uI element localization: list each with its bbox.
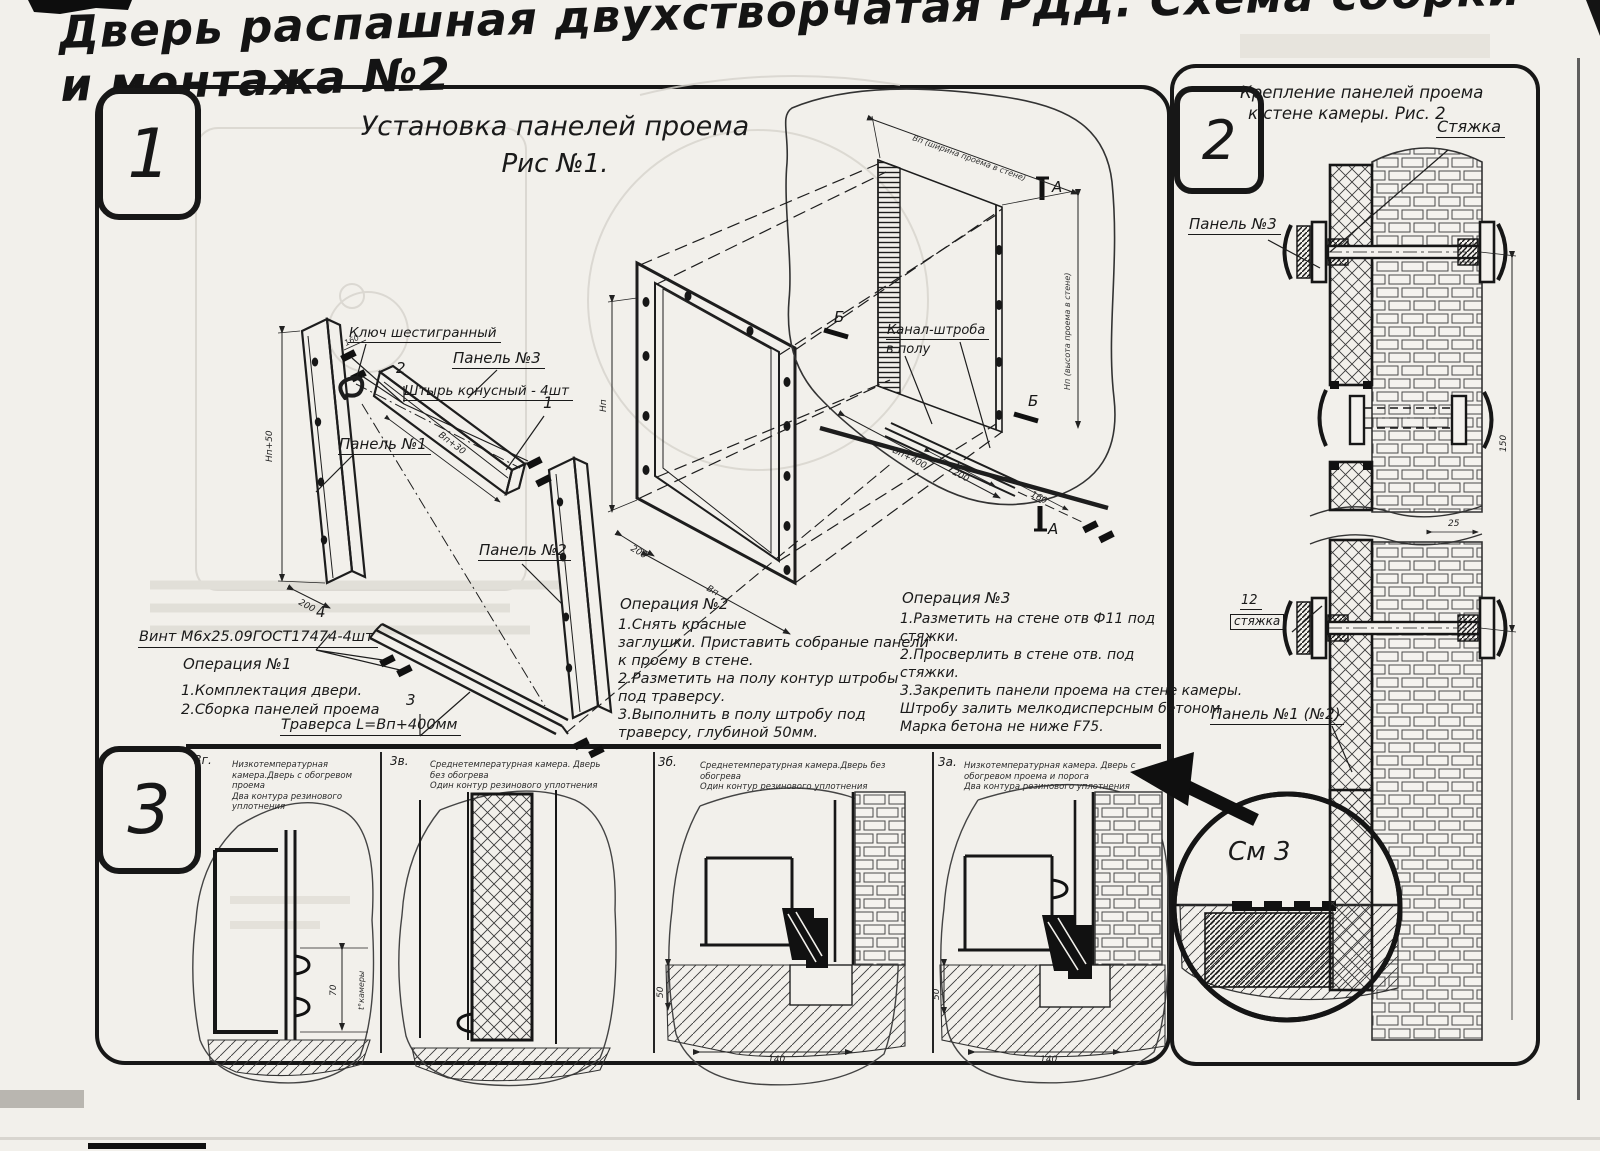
figure2-number: 2 — [1202, 109, 1236, 172]
caption-line: Низкотемпературная камера. Дверь с обогр… — [964, 761, 1164, 782]
fig2-heading-line2: к стене камеры. Рис. 2 — [1248, 105, 1446, 123]
operation2-line: заглушки. Приставить собраные панели — [618, 636, 929, 652]
operation3-line: стяжки. — [900, 666, 959, 681]
operation2-line: 2.Разметить на полу контур штробы — [618, 672, 898, 688]
pin-callout-number: 2 — [396, 360, 406, 377]
panel3-label: Панель №3 — [452, 350, 545, 369]
figure3-divider — [186, 744, 1161, 749]
operation2-line: 3.Выполнить в полу штробу под — [618, 708, 866, 724]
caption-line: Один контур резинового уплотнения — [700, 782, 890, 793]
operation2-line: траверсу, глубиной 50мм. — [618, 726, 818, 742]
figure1-number: 1 — [127, 115, 170, 194]
detail-3g-id: 3г. — [194, 754, 212, 767]
tie-rod-label: Стяжка — [1436, 118, 1505, 138]
figure1-frame — [95, 85, 1171, 1065]
part1-callout-number: 1 — [543, 394, 553, 412]
caption-line: Два контура резинового уплотнения — [964, 782, 1164, 793]
fig2-panel3-label: Панель №3 — [1188, 216, 1281, 235]
detail-3v-caption: Среднетемпературная камера. Дверь без об… — [430, 760, 615, 792]
figure3-badge: 3 — [97, 746, 201, 874]
operation3-line: 1.Разметить на стене отв Ф11 под — [900, 612, 1155, 627]
screw-label: Винт М6х25.09ГОСТ17474-4шт — [138, 630, 378, 648]
screw-callout-number: 4 — [316, 604, 326, 621]
detail-3a-id: 3а. — [938, 756, 957, 769]
figure3-number: 3 — [127, 771, 170, 850]
operation1-title: Операция №1 — [183, 656, 291, 673]
operation1-line1: 1.Комплектация двери. — [181, 684, 362, 700]
caption-line: Один контур резинового уплотнения — [430, 781, 615, 792]
figure3-divider-1 — [380, 752, 382, 1053]
panel1-2-label: Панель №1 (№2) — [1210, 706, 1344, 725]
fig1-heading-line1: Установка панелей проема — [330, 112, 780, 142]
caption-line: Низкотемпературная камера.Дверь с обогре… — [232, 760, 377, 792]
detail-3b-id: 3б. — [658, 756, 677, 769]
traverse-label: Траверса L=Вп+400мм — [280, 718, 461, 736]
figure2-badge: 2 — [1174, 86, 1264, 194]
caption-line: Среднетемпературная камера.Дверь без обо… — [700, 761, 890, 782]
figure1-badge: 1 — [97, 88, 201, 220]
operation3-title: Операция №3 — [902, 590, 1010, 607]
fig2-heading-line1: Крепление панелей проема — [1240, 84, 1483, 102]
detail-3v-id: 3в. — [390, 755, 409, 768]
operation2-title: Операция №2 — [620, 596, 728, 613]
drawing-sheet: Дверь распашная двухстворчатая РДД. Схем… — [0, 0, 1600, 1151]
operation2-line: 1.Снять красные — [618, 618, 746, 634]
operation3-line: 3.Закрепить панели проема на стене камер… — [900, 684, 1242, 699]
floor-channel-label-line2: в полу — [886, 343, 930, 357]
operation2-line: под траверсу. — [618, 690, 725, 706]
panel2-label: Панель №2 — [478, 542, 571, 561]
figure3-divider-2 — [653, 752, 655, 1053]
operation3-line: Штробу залить мелкодисперсным бетоном — [900, 702, 1220, 717]
operation2-line: к проему в стене. — [618, 654, 753, 670]
detail-3g-caption: Низкотемпературная камера.Дверь с обогре… — [232, 760, 377, 813]
traverse-callout-number: 3 — [406, 692, 416, 709]
figure3-divider-3 — [932, 752, 934, 1053]
operation3-line: Марка бетона не ниже F75. — [900, 720, 1104, 735]
detail-3a-caption: Низкотемпературная камера. Дверь с обогр… — [964, 761, 1164, 793]
tie-rod-label-2: стяжка — [1230, 614, 1284, 630]
detail-3b-caption: Среднетемпературная камера.Дверь без обо… — [700, 761, 890, 793]
caption-line: Среднетемпературная камера. Дверь без об… — [430, 760, 615, 781]
floor-channel-label-line1: Канал-штроба — [886, 324, 989, 340]
operation3-line: стяжки. — [900, 630, 959, 645]
hex-key-label: Ключ шестигранный — [348, 326, 501, 343]
panel1-label: Панель №1 — [338, 436, 431, 455]
see-detail-3-label: См 3 — [1228, 838, 1291, 867]
operation3-line: 2.Просверлить в стене отв. под — [900, 648, 1134, 663]
position12-number: 12 — [1240, 594, 1262, 610]
caption-line: Два контура резинового уплотнения — [232, 792, 377, 813]
fig1-heading-line2: Рис №1. — [330, 150, 780, 179]
